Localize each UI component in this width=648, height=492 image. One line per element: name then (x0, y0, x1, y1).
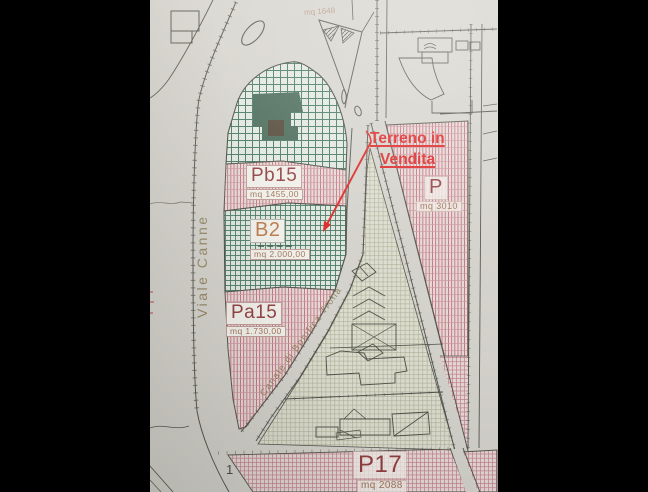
parcel-label-b2: B2 mq 2.000,00 (250, 219, 310, 260)
p17-name: P17 (353, 451, 407, 479)
screenshot-stage: Pb15 mq 1455,00 B2 mq 2.000,00 Pa15 mq 1… (0, 0, 648, 492)
b2-name: B2 (250, 219, 285, 243)
pa15-area: mq 1.730,00 (226, 326, 286, 337)
b2-area: mq 2.000,00 (250, 249, 310, 260)
block-number: 1 (226, 462, 233, 477)
cadastral-map: Pb15 mq 1455,00 B2 mq 2.000,00 Pa15 mq 1… (150, 0, 498, 492)
annotation-terreno-in-vendita: Terreno in Vendita (370, 128, 445, 170)
parcel-label-pa15: Pa15 mq 1.730,00 (226, 302, 286, 337)
parcel-label-pb15: Pb15 mq 1455,00 (246, 165, 303, 200)
parcel-label-p: P mq 3010 (416, 176, 462, 212)
building-footprint-dark (268, 120, 284, 136)
pb15-area: mq 1455,00 (246, 189, 303, 200)
p-name: P (424, 176, 448, 200)
p17-area: mq 2088 (357, 480, 407, 492)
letterbox-right (498, 0, 648, 492)
parcel-label-p17: P17 mq 2088 (353, 451, 407, 492)
annotation-line1: Terreno in (370, 130, 445, 147)
p-area: mq 3010 (416, 201, 462, 213)
letterbox-left (0, 0, 150, 492)
pb15-name: Pb15 (246, 165, 302, 188)
b2-dashes-decoration (258, 245, 292, 247)
street-label-viale-canne: Viale Canne (194, 214, 210, 318)
annotation-line2: Vendita (380, 149, 435, 170)
pa15-name: Pa15 (226, 302, 282, 325)
